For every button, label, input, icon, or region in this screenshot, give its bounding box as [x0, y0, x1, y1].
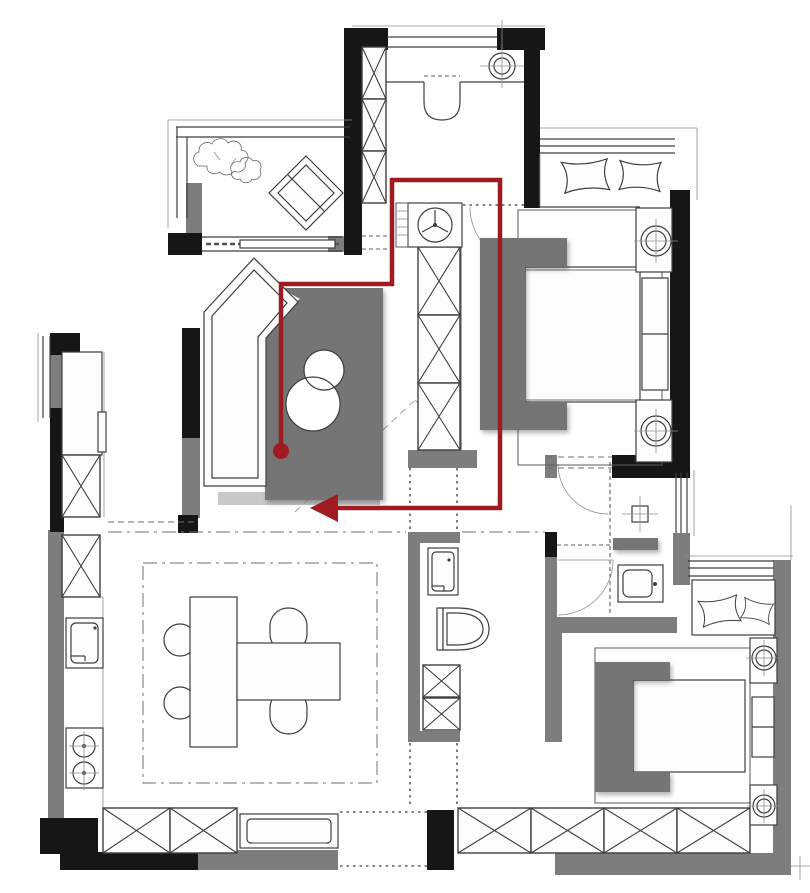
- hatch-strip: [396, 203, 408, 247]
- wall-segment: [773, 560, 791, 875]
- wall-segment: [182, 328, 200, 438]
- wall-segment: [524, 30, 540, 208]
- pillow: [561, 159, 610, 193]
- wall-segment: [178, 515, 198, 533]
- bathroom-door-swing: [558, 464, 608, 514]
- wall-segment: [673, 533, 690, 585]
- route-start-dot: [273, 443, 289, 459]
- wall-segment: [60, 852, 198, 870]
- nightstand: [750, 785, 777, 825]
- mattress: [633, 680, 745, 772]
- storage-window: [43, 336, 50, 418]
- wall-segment: [186, 183, 202, 235]
- sliding-window: [202, 237, 342, 251]
- floor-plan-drawing: [0, 0, 810, 893]
- wall-segment: [550, 617, 677, 633]
- wall-segment: [408, 532, 420, 742]
- wall-segment: [408, 731, 460, 742]
- bench-1: [642, 278, 668, 390]
- dining-table: [190, 597, 340, 747]
- shoe-cabinet: [362, 47, 386, 203]
- bench-2: [752, 697, 774, 757]
- entry-door: [424, 82, 460, 120]
- wall-segment: [168, 233, 202, 255]
- entry-window: [387, 37, 497, 47]
- lounge-chair: [269, 156, 343, 230]
- storage-cabinet: [62, 352, 106, 597]
- bathroom-window: [676, 473, 687, 533]
- wall-segment: [40, 818, 98, 854]
- wall-segment: [182, 438, 200, 518]
- wall-segment: [545, 532, 557, 557]
- wall-segment: [408, 450, 477, 468]
- wall-segment: [344, 28, 362, 255]
- sliding-panel: [240, 240, 335, 248]
- tall-cabinet: [418, 247, 460, 450]
- bedroom2-door: [558, 560, 613, 615]
- cabinet-handle: [98, 412, 106, 452]
- bath-shelf: [613, 538, 658, 550]
- nightstand: [750, 638, 777, 683]
- wall-segment: [545, 455, 557, 478]
- cooktop: [66, 728, 103, 790]
- bedroom2-bay-window: [688, 561, 774, 576]
- bath-storage: [423, 665, 460, 730]
- wardrobe: [458, 808, 750, 853]
- bath-sink: [428, 548, 458, 595]
- wall-segment: [408, 532, 460, 543]
- pillow: [618, 160, 662, 193]
- wall-segment: [670, 190, 690, 478]
- wall-segment: [427, 810, 454, 870]
- washbasin: [618, 565, 663, 602]
- plant: [194, 139, 261, 183]
- kitchen-sink: [66, 618, 103, 668]
- media-niche: [240, 814, 338, 848]
- wall-segment: [548, 620, 562, 742]
- floor-plan-canvas: [0, 0, 810, 893]
- toilet: [437, 608, 489, 650]
- washing-machine: [396, 203, 462, 247]
- wall-segment: [555, 853, 791, 875]
- tv-cabinet: [103, 808, 237, 853]
- shower-drain: [622, 496, 658, 532]
- mattress: [525, 267, 640, 402]
